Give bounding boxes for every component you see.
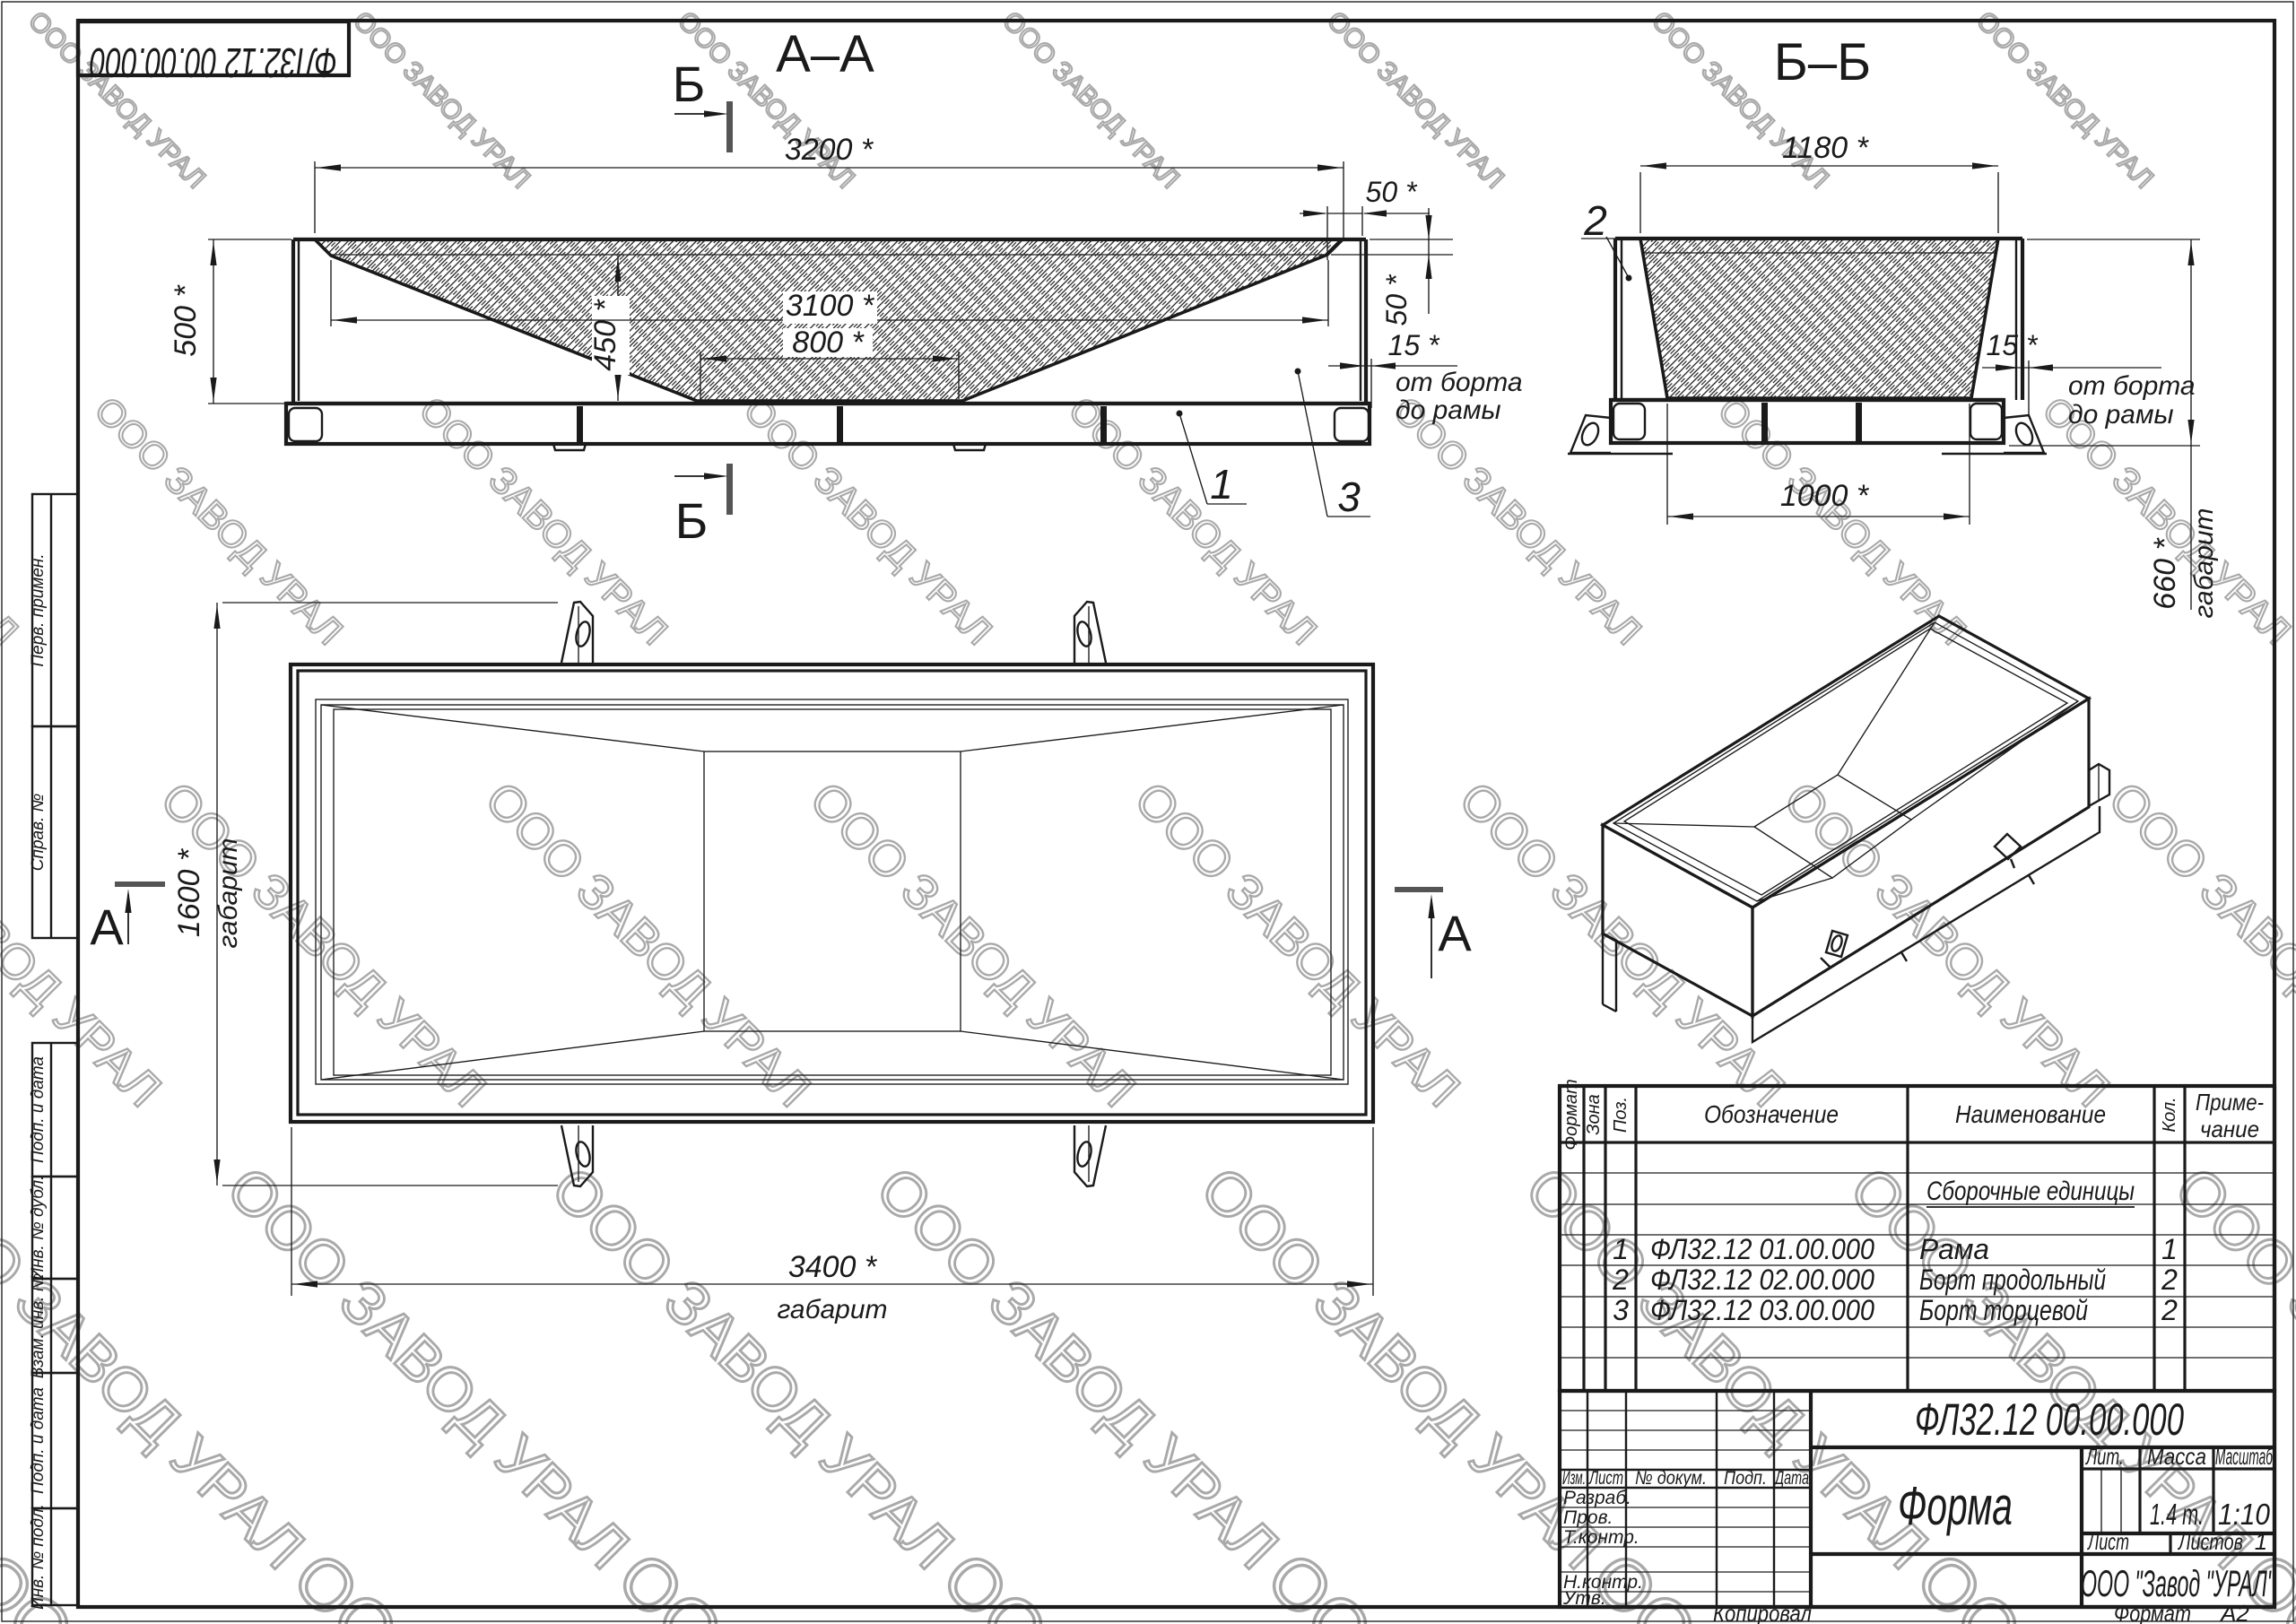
svg-text:Кол.: Кол. — [2160, 1097, 2179, 1132]
svg-text:Подп. и дата: Подп. и дата — [29, 1056, 48, 1163]
svg-text:15 *: 15 * — [1987, 329, 2039, 361]
svg-text:Поз.: Поз. — [1611, 1097, 1631, 1133]
svg-text:2: 2 — [1612, 1264, 1629, 1296]
svg-text:ФЛ32.12 00.00.000: ФЛ32.12 00.00.000 — [90, 39, 337, 86]
svg-text:ФЛ32.12 02.00.000: ФЛ32.12 02.00.000 — [1650, 1264, 1874, 1296]
svg-text:Борт торцевой: Борт торцевой — [1919, 1294, 2088, 1326]
svg-text:Рама: Рама — [1919, 1233, 1989, 1265]
svg-text:Приме-: Приме- — [2196, 1089, 2264, 1116]
svg-text:Форма: Форма — [1898, 1476, 2013, 1536]
svg-text:450 *: 450 * — [588, 299, 622, 371]
svg-text:Масса: Масса — [2147, 1443, 2206, 1470]
svg-text:от борта: от борта — [2068, 371, 2196, 401]
svg-text:ООО "Завод "УРАЛ": ООО "Завод "УРАЛ" — [2081, 1562, 2275, 1604]
svg-text:Б: Б — [675, 492, 709, 549]
svg-text:от борта: от борта — [1396, 368, 1523, 397]
svg-text:2: 2 — [2161, 1264, 2178, 1296]
svg-text:Изм.: Изм. — [1562, 1468, 1586, 1489]
svg-text:А: А — [90, 899, 124, 955]
svg-text:Наименование: Наименование — [1955, 1100, 2106, 1128]
svg-text:1600 *: 1600 * — [172, 847, 206, 937]
svg-text:ФЛ32.12 01.00.000: ФЛ32.12 01.00.000 — [1650, 1233, 1874, 1265]
svg-text:габарит: габарит — [777, 1295, 887, 1324]
svg-text:Б–Б: Б–Б — [1774, 33, 1871, 91]
svg-text:2: 2 — [2161, 1294, 2178, 1326]
svg-text:1: 1 — [2161, 1233, 2178, 1265]
svg-text:800 *: 800 * — [792, 326, 865, 360]
svg-text:1.4 т.: 1.4 т. — [2150, 1498, 2204, 1531]
svg-text:Разраб.: Разраб. — [1563, 1488, 1631, 1508]
svg-text:Пров.: Пров. — [1563, 1507, 1613, 1528]
svg-text:1: 1 — [1613, 1233, 1629, 1265]
svg-text:Утв.: Утв. — [1562, 1588, 1606, 1609]
svg-text:Масштаб: Масштаб — [2215, 1443, 2274, 1470]
svg-text:Лист: Лист — [2087, 1528, 2129, 1555]
svg-text:А: А — [1438, 905, 1472, 961]
svg-text:3400 *: 3400 * — [788, 1250, 878, 1284]
svg-text:А–А: А–А — [776, 25, 874, 83]
svg-text:1180 *: 1180 * — [1782, 131, 1870, 165]
svg-text:Подп.: Подп. — [1724, 1468, 1767, 1489]
svg-text:до рамы: до рамы — [1396, 395, 1501, 425]
svg-text:№ докум.: № докум. — [1635, 1468, 1707, 1489]
svg-text:Лит.: Лит. — [2085, 1443, 2124, 1470]
svg-text:Б: Б — [673, 56, 706, 112]
svg-text:15 *: 15 * — [1388, 329, 1440, 361]
svg-text:1: 1 — [2255, 1528, 2267, 1555]
svg-text:Взам. инв. №: Взам. инв. № — [29, 1273, 48, 1379]
svg-text:Дата: Дата — [1774, 1468, 1809, 1489]
svg-text:500 *: 500 * — [169, 284, 203, 357]
svg-text:3: 3 — [1613, 1294, 1629, 1326]
svg-text:Перв. примен.: Перв. примен. — [29, 553, 48, 666]
svg-text:3100 *: 3100 * — [786, 289, 875, 323]
svg-text:Копировал: Копировал — [1713, 1600, 1812, 1624]
svg-text:Т.контр.: Т.контр. — [1563, 1527, 1639, 1548]
svg-text:Подп. и дата: Подп. и дата — [29, 1387, 48, 1494]
svg-text:Зона: Зона — [1584, 1094, 1604, 1135]
svg-text:660 *: 660 * — [2148, 537, 2182, 610]
svg-text:А2: А2 — [2219, 1600, 2249, 1624]
svg-text:3200 *: 3200 * — [785, 133, 874, 167]
svg-text:Борт продольный: Борт продольный — [1919, 1264, 2106, 1296]
svg-text:50 *: 50 * — [1366, 176, 1418, 208]
svg-text:Сборочные единицы: Сборочные единицы — [1926, 1177, 2135, 1206]
svg-text:1000 *: 1000 * — [1780, 479, 1870, 513]
svg-text:Лист: Лист — [1588, 1468, 1623, 1489]
svg-text:габарит: габарит — [2189, 508, 2219, 618]
svg-text:до рамы: до рамы — [2068, 400, 2174, 430]
svg-text:1:10: 1:10 — [2218, 1498, 2271, 1531]
svg-text:Справ. №: Справ. № — [29, 794, 48, 871]
svg-text:50 *: 50 * — [1380, 274, 1413, 326]
svg-text:ФЛ32.12 03.00.000: ФЛ32.12 03.00.000 — [1650, 1294, 1874, 1326]
svg-text:Формат: Формат — [2114, 1600, 2191, 1624]
svg-text:чание: чание — [2200, 1116, 2259, 1142]
svg-text:ФЛ32.12 00.00.000: ФЛ32.12 00.00.000 — [1915, 1394, 2184, 1445]
svg-text:Инв. № дубл.: Инв. № дубл. — [29, 1176, 48, 1281]
svg-text:Листов: Листов — [2177, 1528, 2243, 1555]
svg-text:2: 2 — [1583, 197, 1607, 244]
svg-text:габарит: габарит — [213, 838, 243, 948]
svg-text:Формат: Формат — [1561, 1079, 1581, 1150]
svg-text:1: 1 — [1210, 461, 1233, 508]
svg-text:3: 3 — [1337, 473, 1361, 520]
svg-text:Обозначение: Обозначение — [1704, 1100, 1839, 1128]
svg-text:Инв. № подл.: Инв. № подл. — [29, 1504, 48, 1610]
